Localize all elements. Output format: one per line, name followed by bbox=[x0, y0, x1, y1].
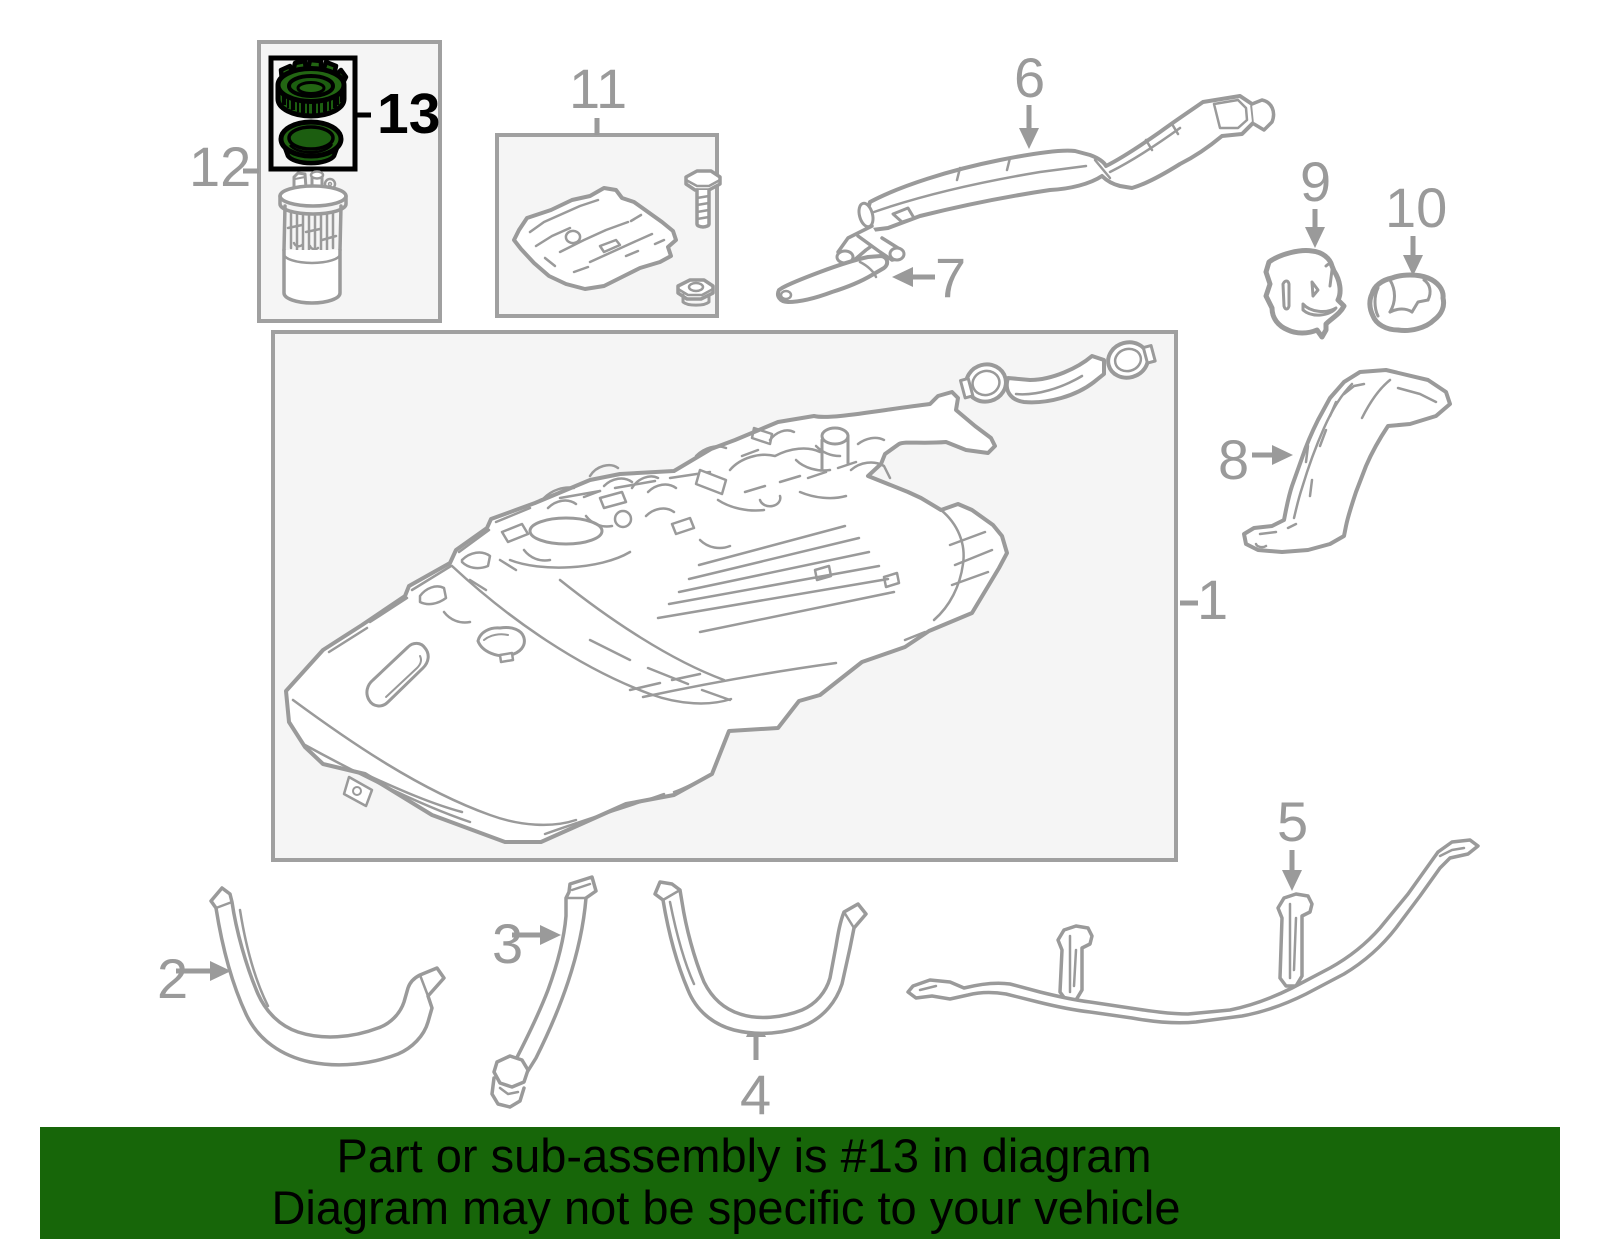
svg-text:4: 4 bbox=[740, 1063, 771, 1126]
svg-text:1: 1 bbox=[1197, 568, 1228, 631]
svg-text:6: 6 bbox=[1014, 46, 1045, 109]
svg-text:2: 2 bbox=[157, 947, 188, 1010]
svg-text:10: 10 bbox=[1385, 176, 1447, 239]
svg-text:3: 3 bbox=[492, 912, 523, 975]
svg-text:8: 8 bbox=[1218, 428, 1249, 491]
svg-text:7: 7 bbox=[935, 246, 966, 309]
svg-text:5: 5 bbox=[1277, 790, 1308, 853]
svg-text:Part or sub-assembly is #13 in: Part or sub-assembly is #13 in diagram bbox=[336, 1129, 1151, 1182]
svg-text:11: 11 bbox=[569, 57, 627, 120]
svg-text:Diagram may not be specific to: Diagram may not be specific to your vehi… bbox=[271, 1181, 1180, 1234]
svg-text:13: 13 bbox=[377, 82, 440, 146]
svg-text:9: 9 bbox=[1300, 150, 1331, 213]
svg-text:12: 12 bbox=[189, 135, 251, 198]
